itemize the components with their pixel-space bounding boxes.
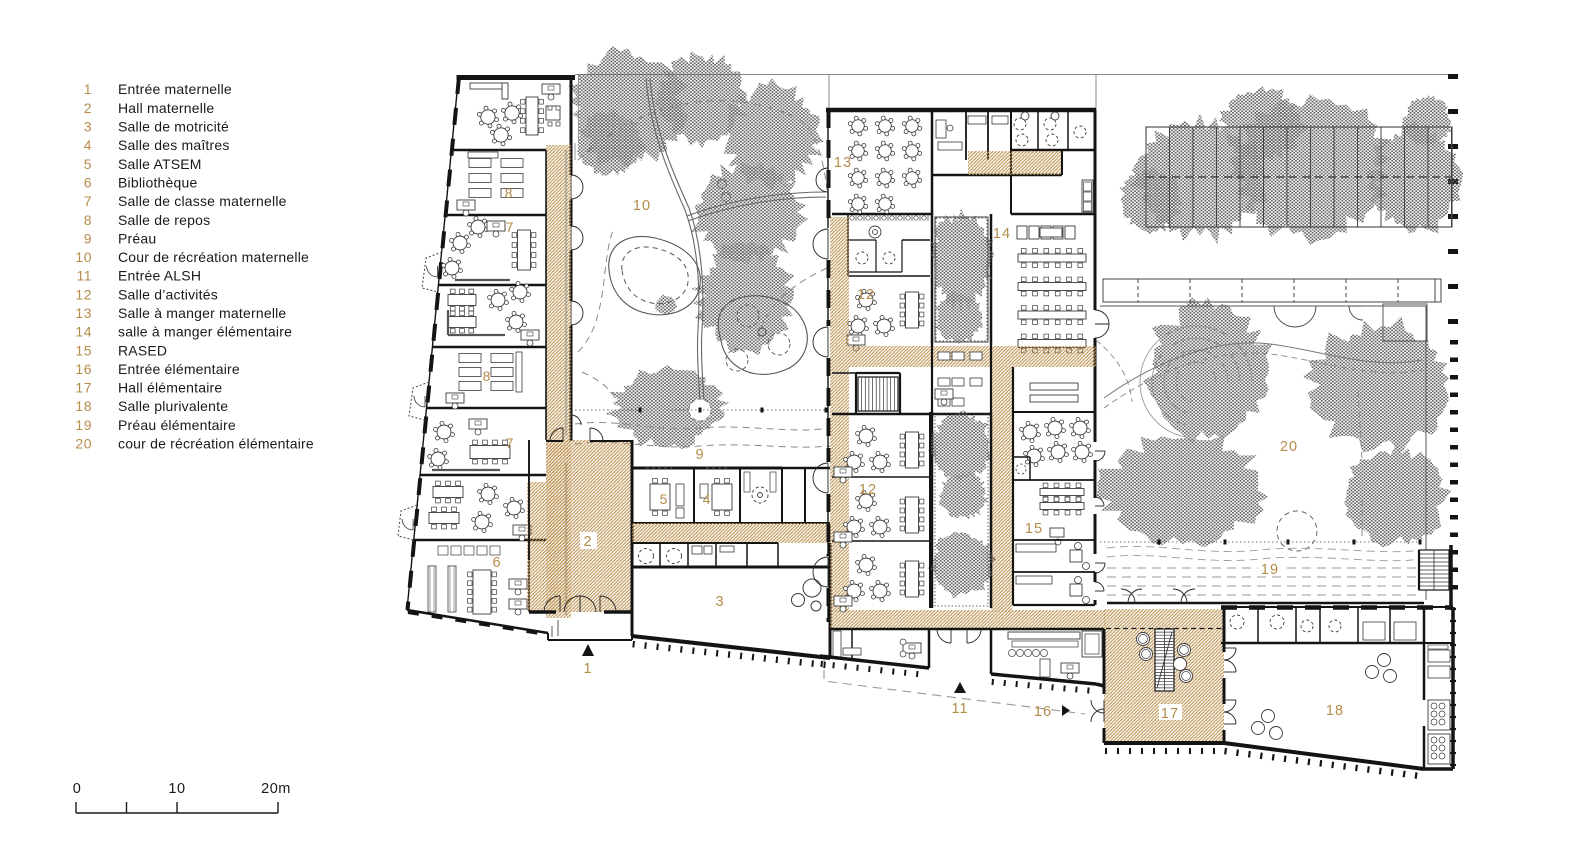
svg-text:9: 9 <box>695 447 704 463</box>
svg-text:Entrée élémentaire: Entrée élémentaire <box>118 361 240 377</box>
svg-text:Salle des maîtres: Salle des maîtres <box>118 137 230 153</box>
svg-text:9: 9 <box>84 230 92 246</box>
svg-text:19: 19 <box>75 417 92 433</box>
svg-text:10: 10 <box>633 198 651 214</box>
svg-text:0: 0 <box>73 781 82 797</box>
svg-text:13: 13 <box>75 305 92 321</box>
svg-text:Bibliothèque: Bibliothèque <box>118 174 197 190</box>
svg-text:5: 5 <box>660 491 669 507</box>
svg-text:19: 19 <box>1261 562 1279 578</box>
svg-text:1: 1 <box>84 81 92 97</box>
svg-text:20m: 20m <box>261 781 291 797</box>
svg-text:Hall maternelle: Hall maternelle <box>118 100 214 116</box>
svg-text:Salle plurivalente: Salle plurivalente <box>118 398 228 414</box>
svg-text:1: 1 <box>583 661 592 677</box>
svg-text:5: 5 <box>84 156 92 172</box>
svg-text:3: 3 <box>84 119 92 135</box>
svg-text:Salle de motricité: Salle de motricité <box>118 119 229 135</box>
svg-text:6: 6 <box>84 174 92 190</box>
svg-text:11: 11 <box>951 701 968 717</box>
svg-text:Entrée ALSH: Entrée ALSH <box>118 268 201 284</box>
svg-text:14: 14 <box>75 324 92 340</box>
svg-text:8: 8 <box>84 212 92 228</box>
svg-text:3: 3 <box>715 594 724 610</box>
svg-text:2: 2 <box>583 534 592 550</box>
svg-text:RASED: RASED <box>118 342 167 358</box>
svg-text:20: 20 <box>75 436 92 452</box>
svg-text:Cour de récréation maternelle: Cour de récréation maternelle <box>118 249 309 265</box>
svg-text:4: 4 <box>84 137 92 153</box>
svg-text:6: 6 <box>492 555 501 571</box>
svg-text:20: 20 <box>1280 439 1298 455</box>
svg-text:salle à manger élémentaire: salle à manger élémentaire <box>118 324 292 340</box>
svg-text:Salle ATSEM: Salle ATSEM <box>118 156 202 172</box>
svg-text:12: 12 <box>859 482 877 498</box>
svg-text:14: 14 <box>993 226 1011 242</box>
svg-text:11: 11 <box>76 268 92 284</box>
svg-text:16: 16 <box>75 361 92 377</box>
svg-text:Salle à manger maternelle: Salle à manger maternelle <box>118 305 286 321</box>
svg-text:7: 7 <box>506 435 515 451</box>
svg-text:10: 10 <box>168 781 185 797</box>
svg-text:4: 4 <box>703 491 712 507</box>
svg-text:7: 7 <box>506 219 515 235</box>
svg-text:8: 8 <box>483 368 492 384</box>
svg-text:Salle de classe maternelle: Salle de classe maternelle <box>118 193 287 209</box>
svg-text:16: 16 <box>1034 704 1052 720</box>
svg-text:15: 15 <box>1025 521 1043 537</box>
svg-text:15: 15 <box>75 342 92 358</box>
svg-text:7: 7 <box>84 193 92 209</box>
svg-text:Entrée maternelle: Entrée maternelle <box>118 81 232 97</box>
svg-text:18: 18 <box>1326 703 1344 719</box>
svg-text:Salle d’activités: Salle d’activités <box>118 286 218 302</box>
svg-text:2: 2 <box>84 100 92 116</box>
svg-text:Préau: Préau <box>118 230 156 246</box>
svg-text:Hall élémentaire: Hall élémentaire <box>118 380 222 396</box>
svg-text:8: 8 <box>505 185 514 201</box>
svg-text:17: 17 <box>1161 706 1179 722</box>
svg-text:13: 13 <box>834 155 852 171</box>
svg-text:10: 10 <box>75 249 92 265</box>
svg-text:Salle de repos: Salle de repos <box>118 212 210 228</box>
svg-text:cour de récréation élémentaire: cour de récréation élémentaire <box>118 436 314 452</box>
svg-text:12: 12 <box>75 286 92 302</box>
svg-text:Préau élémentaire: Préau élémentaire <box>118 417 236 433</box>
svg-text:12: 12 <box>857 287 875 303</box>
svg-text:18: 18 <box>75 398 92 414</box>
svg-text:17: 17 <box>75 380 92 396</box>
